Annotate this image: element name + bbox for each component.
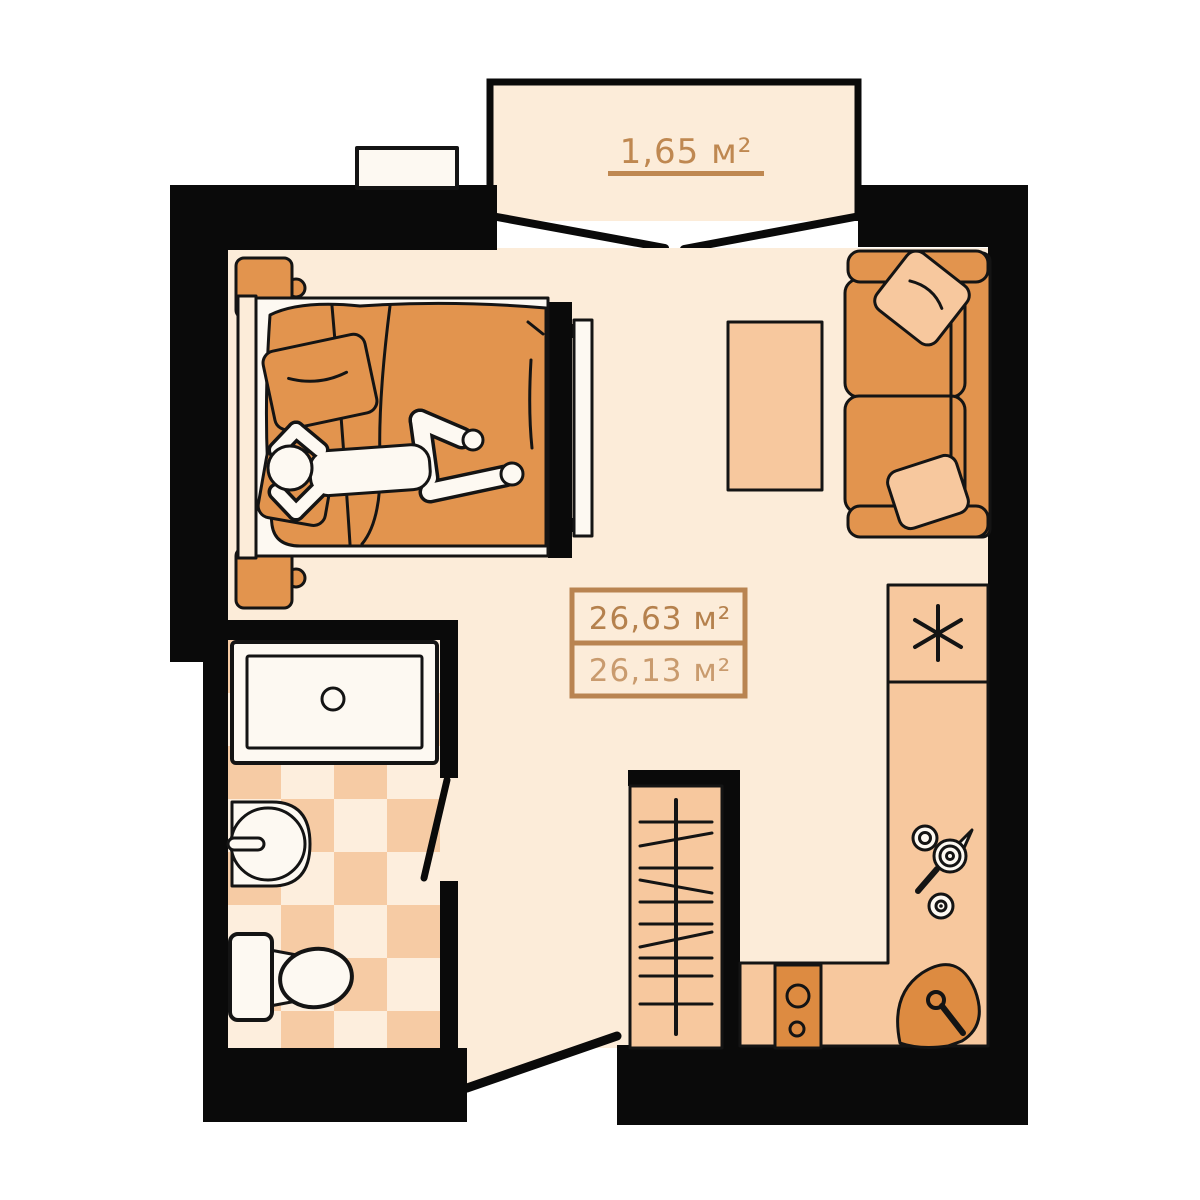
person-foot bbox=[463, 430, 483, 450]
wall-bathroom-top bbox=[225, 620, 458, 640]
sofa bbox=[845, 246, 990, 537]
basin-faucet bbox=[228, 838, 264, 850]
ventilation-shaft bbox=[357, 148, 457, 188]
coffee-table bbox=[728, 322, 822, 490]
balcony-area-text: 1,65 м² bbox=[620, 132, 753, 172]
total-area-text: 26,63 м² bbox=[589, 601, 731, 637]
person-head bbox=[268, 446, 312, 490]
fridge bbox=[888, 585, 988, 682]
person-torso bbox=[309, 444, 432, 497]
area-info-box: 26,63 м² 26,13 м² bbox=[572, 590, 745, 696]
person-foot bbox=[501, 463, 523, 485]
wall-wardrobe-right bbox=[722, 770, 740, 1050]
bathtub bbox=[232, 642, 437, 763]
pot-small bbox=[913, 826, 937, 850]
living-area-text: 26,13 м² bbox=[589, 653, 731, 689]
wall-right bbox=[988, 247, 1028, 1125]
wall-left-upper bbox=[170, 185, 228, 662]
stove bbox=[775, 965, 821, 1048]
bathtub-outer bbox=[232, 642, 437, 763]
floor-plan: 1,65 м² 26,63 м² 26,13 м² bbox=[0, 0, 1200, 1200]
person-torso-shape bbox=[309, 444, 432, 497]
double-bed bbox=[238, 296, 548, 558]
sleeping-area bbox=[236, 258, 592, 608]
balcony-area-label: 1,65 м² bbox=[608, 132, 764, 176]
tv-screen bbox=[574, 320, 592, 536]
wardrobe bbox=[630, 786, 722, 1048]
wash-basin bbox=[228, 802, 310, 886]
floor-plan-canvas: 1,65 м² 26,63 м² 26,13 м² bbox=[0, 0, 1200, 1200]
bathroom bbox=[228, 640, 447, 1048]
wall-bathroom-right-lower bbox=[440, 881, 458, 1050]
wall-bathroom-right-upper bbox=[440, 620, 458, 778]
toilet-tank bbox=[230, 934, 272, 1020]
balcony-label-underline bbox=[608, 171, 764, 176]
bed-headboard bbox=[238, 296, 256, 558]
wall-bottom-right bbox=[617, 1045, 1028, 1125]
wall-bottom-left bbox=[203, 1048, 467, 1122]
wall-top-right bbox=[858, 185, 1028, 247]
pot-small-2-dot bbox=[939, 904, 943, 908]
